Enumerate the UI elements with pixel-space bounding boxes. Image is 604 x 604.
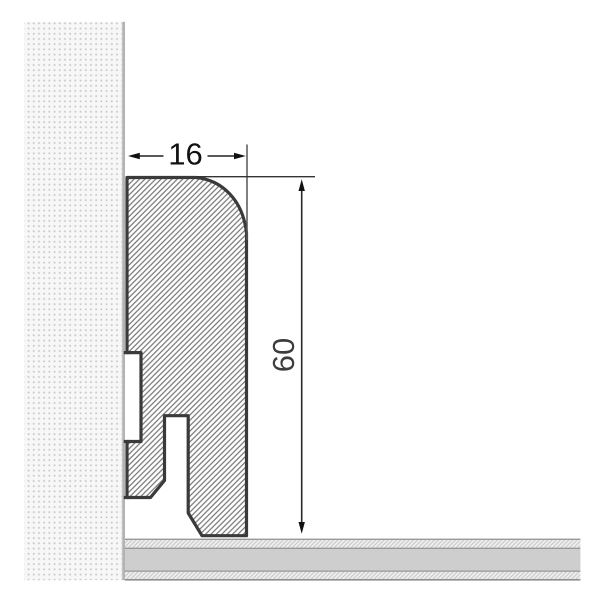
svg-text:60: 60 [266, 338, 301, 372]
svg-text:16: 16 [168, 137, 202, 172]
